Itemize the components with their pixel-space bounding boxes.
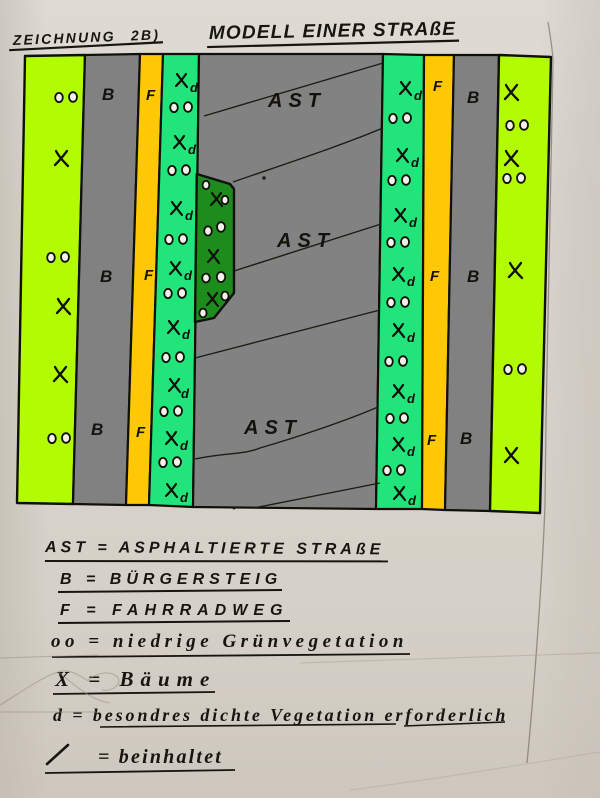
svg-text:= beinhaltet: = beinhaltet <box>98 746 223 768</box>
svg-text:d: d <box>408 493 417 508</box>
svg-text:B = BÜRGERSTEIG: B = BÜRGERSTEIG <box>60 569 282 588</box>
svg-text:d = besondres dichte Vegetatio: d = besondres dichte Vegetation erforder… <box>53 705 508 725</box>
svg-text:d: d <box>188 142 197 157</box>
svg-text:B: B <box>467 267 479 286</box>
svg-text:B: B <box>460 429 472 448</box>
svg-text:d: d <box>407 391 416 406</box>
svg-text:oo = niedrige Grünvegetation: oo = niedrige Grünvegetation <box>51 631 408 652</box>
svg-text:d: d <box>181 386 190 401</box>
svg-text:d: d <box>407 330 416 345</box>
svg-text:d: d <box>414 88 423 103</box>
svg-text:d: d <box>411 155 420 170</box>
svg-text:MODELL EINER STRAßE: MODELL EINER STRAßE <box>209 19 457 44</box>
svg-text:d: d <box>407 274 416 289</box>
svg-text:F: F <box>144 267 154 284</box>
svg-text:B: B <box>102 85 114 104</box>
svg-text:B: B <box>100 267 112 286</box>
svg-text:F: F <box>146 87 156 104</box>
svg-text:d: d <box>184 268 193 283</box>
svg-text:F = FAHRRADWEG: F = FAHRRADWEG <box>60 602 288 619</box>
svg-text:d: d <box>180 490 189 505</box>
svg-text:d: d <box>180 438 189 453</box>
svg-text:F: F <box>136 424 146 441</box>
svg-text:AST: AST <box>276 230 335 252</box>
svg-text:B: B <box>91 420 103 439</box>
svg-text:F: F <box>433 78 443 95</box>
svg-text:AST = ASPHALTIERTE STRAßE: AST = ASPHALTIERTE STRAßE <box>44 539 384 558</box>
svg-text:F: F <box>430 268 440 285</box>
svg-text:AST: AST <box>243 417 302 439</box>
svg-text:d: d <box>190 80 199 95</box>
svg-text:F: F <box>427 432 437 449</box>
svg-text:d: d <box>407 444 416 459</box>
svg-text:B: B <box>467 88 479 107</box>
svg-text:d: d <box>182 327 191 342</box>
svg-text:d: d <box>185 208 194 223</box>
svg-text:d: d <box>409 215 418 230</box>
svg-text:AST: AST <box>267 90 326 112</box>
